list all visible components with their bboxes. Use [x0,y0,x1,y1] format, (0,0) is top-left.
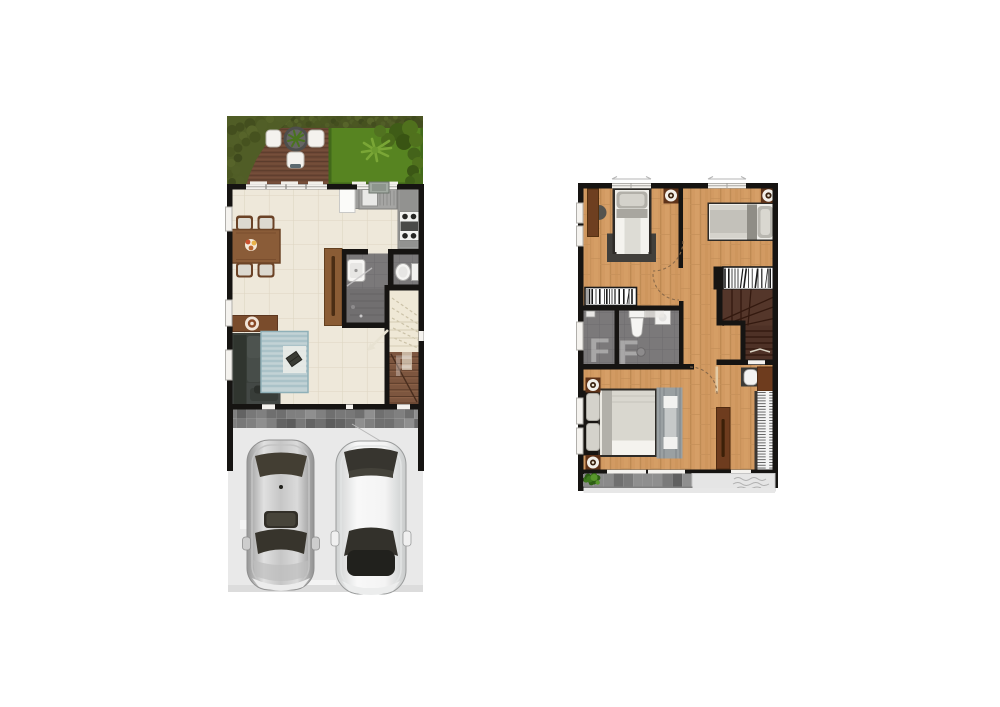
svg-text:F: F [394,350,412,383]
